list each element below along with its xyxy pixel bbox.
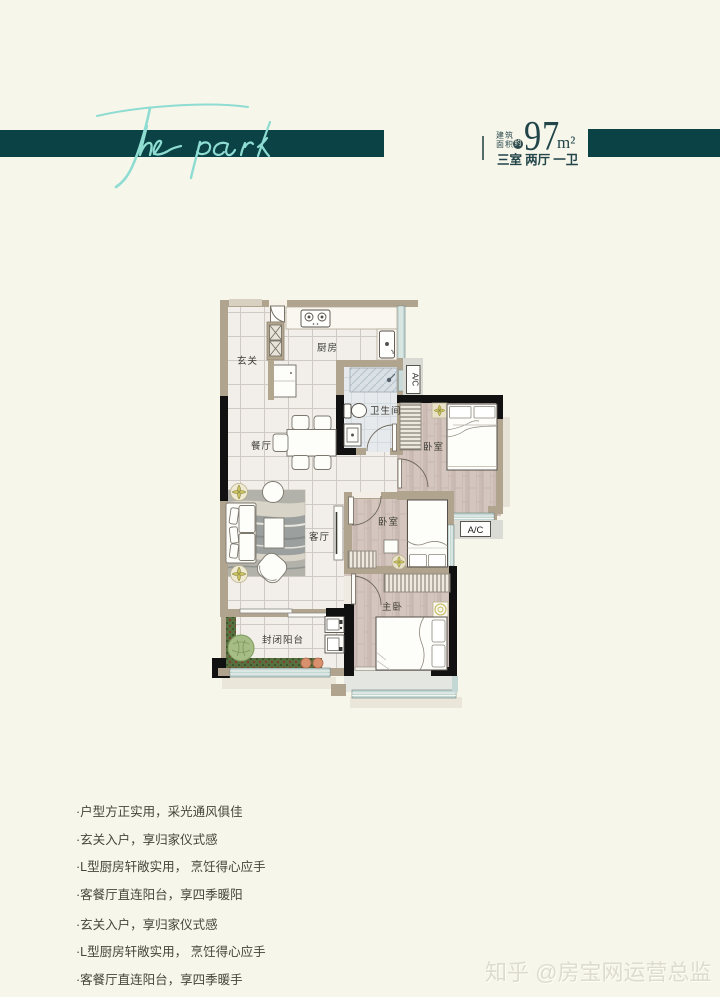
svg-text:客厅: 客厅 (309, 531, 330, 543)
svg-text:A/C: A/C (411, 373, 420, 387)
svg-text:封闭阳台: 封闭阳台 (262, 634, 304, 646)
svg-text:玄关: 玄关 (237, 355, 258, 367)
svg-text:卫生间: 卫生间 (370, 405, 402, 417)
svg-text:卧室: 卧室 (423, 441, 444, 453)
svg-text:厨房: 厨房 (317, 342, 338, 354)
svg-text:餐厅: 餐厅 (251, 440, 272, 452)
svg-text:主卧: 主卧 (382, 601, 403, 613)
svg-text:卧室: 卧室 (378, 516, 399, 528)
svg-text:A/C: A/C (468, 525, 484, 536)
